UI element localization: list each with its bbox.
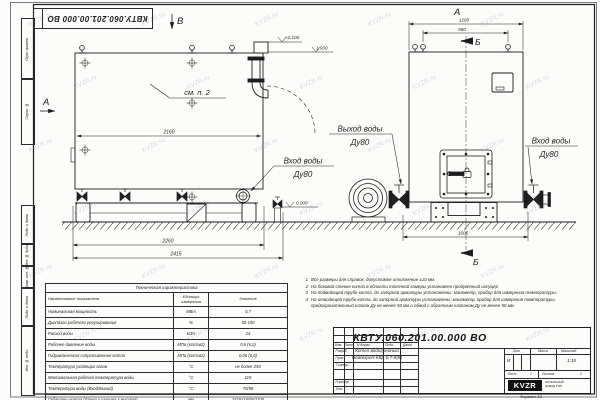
table-row: Температура воды (Вход/Выход)°С70/95: [46, 384, 288, 395]
tech-table-title: Техническая характеристика: [46, 284, 288, 293]
section-letter-b-top: Б: [475, 37, 481, 47]
boiler-front-view: [389, 36, 551, 250]
outlet-pipe-icon: [248, 57, 268, 98]
tb-sheets-label: Листов: [542, 373, 554, 376]
tech-header-value: Значение: [209, 293, 288, 307]
kvzr-logo-caption: КОТЕЛЬНЫЙ ЗАВОД РЭП: [545, 381, 564, 389]
tb-col-podp: Подп.: [385, 344, 394, 347]
margin-box-podp-data-2: Подп. и дата: [21, 287, 35, 327]
view-letter-b: В: [177, 16, 184, 27]
front-base: [431, 203, 497, 223]
inlet2-label-dn: Ду80: [539, 150, 559, 159]
door-swing-arc: [267, 86, 315, 134]
outlet-label-title: Выход воды: [338, 125, 383, 134]
notes-list: 1Все размеры для справок, допустимое отк…: [300, 277, 592, 310]
section-letter-b-bottom: Б: [473, 257, 479, 267]
target-mark-icon: [80, 58, 198, 203]
outlet-valve-icon: [389, 185, 409, 208]
inlet-label-title: Вход воды: [284, 157, 323, 166]
table-row: Диапазон рабочего регулирования%50-100: [46, 318, 288, 329]
tb-col-dokum: N докум.: [357, 344, 370, 347]
tb-sheet-label: Лист: [508, 373, 517, 376]
tb-scale-label: Масштаб: [561, 350, 576, 353]
tb-col-izm: Изм.: [335, 344, 342, 347]
inlet2-label-title: Вход воды: [532, 137, 571, 146]
control-box: [492, 73, 513, 92]
dim-1260: 1260: [459, 18, 470, 23]
note-item: 4На отводящей трубе котла, до запорной а…: [300, 297, 592, 310]
tech-characteristics-table: Техническая характеристика Наименование …: [45, 283, 288, 400]
fan: [349, 179, 387, 222]
note-item: 1Все размеры для справок, допустимое отк…: [300, 277, 592, 284]
tb-scale-value: 1:15: [567, 359, 576, 364]
note-item: 3На подводящей трубе котла, до запорной …: [300, 290, 592, 297]
ground-hatch: [62, 222, 576, 230]
dim-960: 960: [458, 27, 466, 32]
rear-valve-icon: [273, 197, 282, 222]
tb-col-list: Лист: [345, 344, 354, 347]
table-row: Температура уходящих газов°Сне более 250: [46, 362, 288, 373]
margin-box-vzam-inv: Взам. инв. №: [21, 265, 35, 289]
elevation-top: +2.100: [285, 35, 300, 40]
table-row: Максимальная рабочая температура воды°С1…: [46, 373, 288, 384]
lifting-lug-icon: [77, 45, 237, 53]
table-row: Гидравлическое сопротивление котлаМПа (к…: [46, 351, 288, 362]
tb-row-tkontr: Т.контр.: [336, 364, 349, 367]
tb-row-nkontr: Н.контр.: [336, 381, 350, 384]
boiler-side-view: [71, 42, 315, 222]
table-row: Габариты котла (Длина х ширина х высота)…: [46, 395, 288, 400]
tb-mass-label: Масса: [538, 350, 548, 353]
table-row: Рабочее давление водыМПа (кгс/см2)0,6 (6…: [46, 340, 288, 351]
table-row: Номинальная мощностьМВт0,7: [46, 307, 288, 318]
tb-col-data: Дата: [403, 344, 412, 347]
see-note-ref: см. п. 2: [184, 88, 210, 97]
outlet-label-dn: Ду80: [350, 138, 370, 147]
margin-box-sprav-no: Справ. №: [21, 78, 35, 145]
tech-header-name: Наименование показателя: [46, 293, 174, 307]
elevation-mid: 1.930: [316, 46, 328, 51]
tb-lit-label: Лит.: [513, 350, 521, 353]
top-stamp-side-cell: [34, 9, 43, 28]
lifting-lug-icon: [410, 44, 513, 52]
dim-2415: 2415: [169, 252, 181, 258]
dim-1605: 1605: [458, 231, 469, 236]
drawing-sheet: 2160 2260 2415 +2.100 1.930 0.000 А В см…: [0, 0, 600, 400]
chimney-stub: [254, 42, 268, 53]
tb-sheets-value: 2: [580, 373, 582, 376]
top-stamp: КВТУ.060.201.00.000 ВО: [33, 8, 153, 29]
inlet-label-dn: Ду80: [293, 170, 313, 179]
dim-2260: 2260: [161, 239, 173, 245]
note-item: 2На боковой стенке котла в области топоч…: [300, 284, 592, 291]
tb-row-razrab: Разраб.: [336, 350, 348, 353]
margin-box-inv-dubl: Инв. № дубл.: [21, 243, 35, 267]
view-letter-a: А: [42, 97, 49, 108]
table-row: Расход водым3/ч24: [46, 329, 288, 340]
tech-header-units: Единицы измерения: [174, 293, 209, 307]
margin-box-inv-podl: Инв. № подл.: [21, 325, 35, 396]
inlet-valve-icon: [524, 185, 551, 208]
dim-2160: 2160: [162, 130, 174, 136]
top-stamp-number: КВТУ.060.201.00.000 ВО: [43, 9, 152, 28]
tb-row-prov: Пров.: [336, 357, 345, 360]
margin-box-podp-data-1: Подп. и дата: [21, 205, 35, 245]
elevation-zero: 0.000: [296, 201, 308, 206]
format-label: Формат А3: [520, 394, 542, 399]
view-label-a: А: [453, 7, 460, 18]
title-block: Изм. Лист N докум. Подп. Дата Разраб. Пр…: [333, 327, 591, 394]
tb-row-utv: Утв.: [336, 388, 344, 391]
front-view-dimensions: [403, 21, 528, 253]
kvzr-logo: KVZR: [508, 380, 542, 391]
valve-icon: [77, 189, 187, 201]
tb-sheet-value: 1: [530, 373, 532, 376]
inlet-flange-icon: [235, 188, 251, 204]
tb-lit-value: И: [507, 359, 510, 364]
